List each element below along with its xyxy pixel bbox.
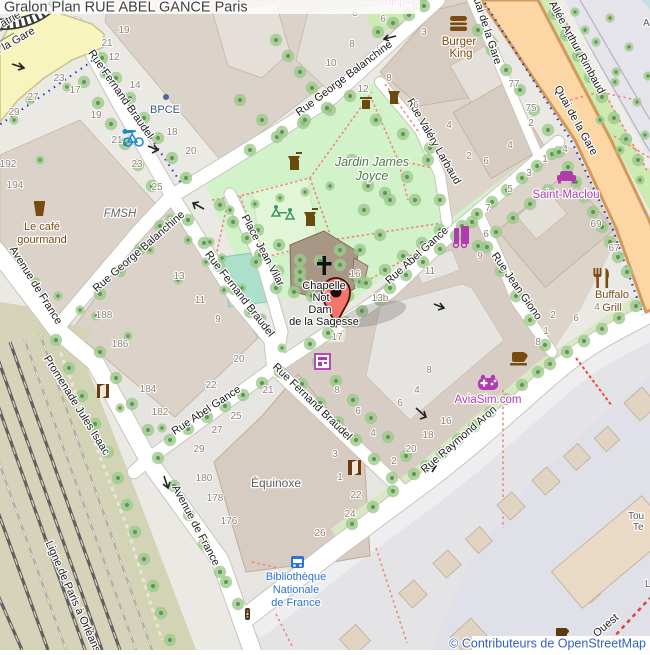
svg-text:16: 16 (440, 416, 452, 427)
svg-text:4: 4 (507, 140, 513, 151)
svg-text:Bibliothèque: Bibliothèque (266, 571, 327, 583)
svg-text:188: 188 (96, 310, 113, 321)
svg-text:13b: 13b (372, 293, 389, 304)
svg-text:25: 25 (230, 411, 242, 422)
svg-text:24: 24 (344, 509, 356, 520)
svg-text:Chapelle: Chapelle (302, 280, 345, 292)
svg-text:4: 4 (446, 120, 452, 131)
svg-text:26: 26 (314, 528, 326, 539)
svg-text:77: 77 (508, 79, 520, 90)
svg-text:194: 194 (7, 180, 24, 191)
svg-text:23: 23 (53, 73, 65, 84)
svg-text:de France: de France (271, 597, 321, 609)
svg-text:178: 178 (207, 493, 224, 504)
svg-text:20: 20 (405, 444, 417, 455)
svg-text:Not: Not (312, 292, 329, 304)
svg-text:8: 8 (349, 39, 355, 50)
svg-text:BPCE: BPCE (150, 104, 180, 116)
svg-text:AviaSim.com: AviaSim.com (455, 394, 522, 406)
svg-text:182: 182 (152, 407, 169, 418)
svg-text:Saint-Maclou: Saint-Maclou (532, 189, 599, 201)
svg-text:18: 18 (422, 430, 434, 441)
svg-text:11: 11 (195, 295, 206, 306)
svg-text:22: 22 (350, 490, 362, 501)
svg-text:2: 2 (466, 151, 472, 162)
svg-text:6: 6 (380, 14, 386, 25)
svg-text:3: 3 (332, 449, 338, 460)
svg-text:Le café: Le café (24, 221, 60, 233)
svg-text:19: 19 (90, 110, 102, 121)
svg-text:11: 11 (425, 266, 436, 277)
svg-text:2: 2 (528, 118, 534, 129)
svg-text:2: 2 (550, 310, 556, 321)
svg-text:13: 13 (173, 271, 185, 282)
svg-text:6: 6 (397, 398, 403, 409)
svg-text:69: 69 (590, 219, 602, 230)
svg-text:6: 6 (355, 406, 361, 417)
svg-text:8: 8 (426, 365, 432, 376)
svg-text:21: 21 (101, 38, 113, 49)
svg-text:7: 7 (485, 203, 491, 214)
svg-text:Tou: Tou (628, 511, 644, 522)
svg-text:27: 27 (211, 425, 223, 436)
svg-text:8: 8 (535, 337, 541, 348)
svg-text:25: 25 (151, 182, 163, 193)
svg-text:3: 3 (526, 168, 532, 179)
svg-text:4: 4 (370, 428, 376, 439)
svg-text:Buffalo: Buffalo (595, 289, 629, 301)
svg-text:Dam: Dam (308, 304, 331, 316)
svg-text:8: 8 (386, 73, 392, 84)
svg-text:12: 12 (357, 84, 369, 95)
svg-text:186: 186 (112, 339, 129, 350)
svg-text:6: 6 (573, 313, 579, 324)
svg-text:de la Sagesse: de la Sagesse (289, 316, 359, 328)
svg-text:21: 21 (111, 135, 123, 146)
svg-text:20: 20 (233, 354, 245, 365)
svg-text:2: 2 (391, 456, 397, 467)
svg-text:17: 17 (69, 85, 81, 96)
svg-text:Joyce: Joyce (355, 169, 389, 183)
svg-text:19: 19 (118, 25, 130, 36)
svg-text:17: 17 (331, 332, 343, 343)
svg-text:King: King (449, 48, 472, 60)
svg-text:Équinoxe: Équinoxe (251, 475, 301, 490)
svg-text:© Contributeurs de OpenStreetM: © Contributeurs de OpenStreetMap (449, 637, 646, 651)
svg-text:184: 184 (140, 384, 157, 395)
svg-text:9: 9 (477, 251, 483, 262)
svg-text:192: 192 (0, 159, 17, 170)
svg-text:9: 9 (215, 314, 221, 325)
svg-text:Burger: Burger (442, 36, 477, 48)
svg-text:20: 20 (185, 146, 197, 157)
svg-text:A: A (643, 18, 650, 29)
svg-text:27: 27 (27, 92, 39, 103)
svg-text:22: 22 (205, 380, 217, 391)
svg-text:10: 10 (325, 58, 337, 69)
svg-text:Jardin James: Jardin James (334, 155, 409, 169)
svg-text:6: 6 (413, 100, 419, 111)
svg-text:4: 4 (414, 385, 420, 396)
svg-text:Te: Te (633, 522, 644, 533)
svg-text:21: 21 (262, 385, 274, 396)
svg-text:14: 14 (129, 80, 141, 91)
svg-text:1: 1 (543, 326, 549, 337)
svg-text:1: 1 (337, 472, 343, 483)
svg-text:4: 4 (594, 302, 600, 313)
svg-text:18: 18 (166, 127, 178, 138)
svg-text:8: 8 (334, 385, 340, 396)
svg-text:176: 176 (221, 516, 238, 527)
svg-text:67: 67 (608, 243, 620, 254)
svg-text:L: L (645, 579, 650, 590)
svg-text:6: 6 (483, 156, 489, 167)
svg-text:Grill: Grill (602, 302, 622, 314)
svg-text:12: 12 (108, 52, 120, 63)
svg-text:6: 6 (483, 229, 489, 240)
svg-text:180: 180 (196, 473, 213, 484)
svg-text:16: 16 (349, 269, 361, 280)
svg-text:29: 29 (193, 444, 205, 455)
svg-text:Gralon Plan RUE ABEL GANCE Par: Gralon Plan RUE ABEL GANCE Paris (4, 0, 248, 16)
svg-text:29: 29 (8, 107, 20, 118)
svg-text:gourmand: gourmand (17, 234, 67, 246)
svg-text:Nationale: Nationale (273, 584, 319, 596)
svg-text:23: 23 (131, 159, 143, 170)
svg-text:1: 1 (542, 154, 548, 165)
svg-text:4: 4 (562, 144, 568, 155)
svg-text:5: 5 (507, 184, 513, 195)
svg-text:FMSH: FMSH (104, 208, 137, 220)
svg-text:3: 3 (421, 27, 427, 38)
svg-text:75: 75 (525, 103, 537, 114)
